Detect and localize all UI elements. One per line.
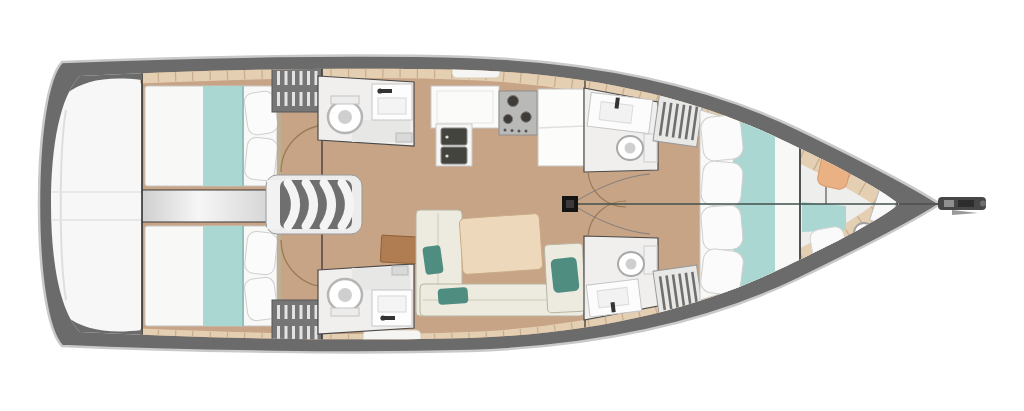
pillow [700, 204, 744, 251]
galley-counter-left [431, 86, 499, 128]
chart-desk [380, 235, 419, 264]
sink-icon [372, 84, 412, 120]
toilet-icon [328, 279, 362, 316]
aft-head-port [318, 76, 414, 146]
aft-head-starboard [318, 264, 414, 334]
vent-grill [392, 266, 408, 275]
pillow [244, 231, 278, 276]
pillow [244, 137, 278, 182]
double-sink-icon [436, 124, 472, 166]
saloon-table [459, 213, 543, 274]
pillow [700, 114, 744, 162]
bed-runner-starboard [203, 226, 243, 326]
toilet-icon [617, 134, 657, 162]
bed-runner-port [203, 86, 243, 186]
vent-grill [396, 133, 412, 142]
galley-fridge-counter [538, 89, 584, 166]
teal-cushion [437, 287, 468, 305]
floor-plan-canvas [0, 0, 1024, 411]
sink-icon [372, 290, 412, 326]
teal-cushion [550, 257, 579, 294]
stove-icon [499, 91, 537, 135]
toilet-icon [328, 96, 362, 133]
yacht-floor-plan [0, 0, 1024, 411]
pillow [700, 160, 744, 207]
hanging-locker-aft-port [272, 66, 322, 112]
engine-passage [142, 190, 268, 222]
sink-icon [587, 92, 653, 133]
sink-icon [586, 279, 642, 317]
companionway-stairs [266, 175, 362, 234]
